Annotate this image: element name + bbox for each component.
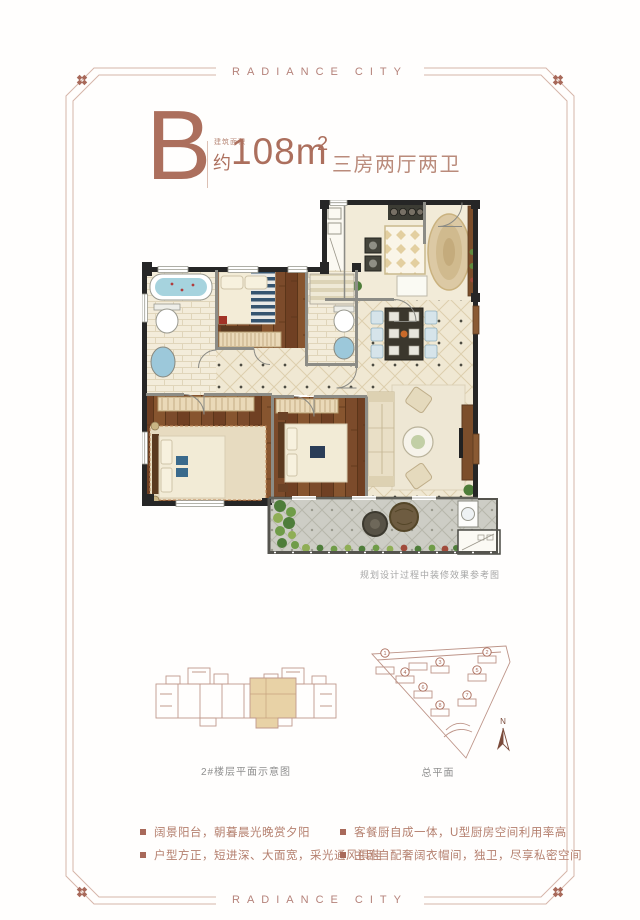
bullet-square-icon [340, 829, 346, 835]
room-configuration: 三房两厅两卫 [332, 148, 461, 177]
dining-area [371, 308, 437, 360]
svg-text:N: N [500, 717, 506, 726]
feature-item: 主卧自配奢阔衣帽间，独卫，尽享私密空间 [340, 847, 582, 863]
floor-plan [142, 200, 502, 558]
area-value: 108m [231, 131, 328, 173]
site-plan-diagram: 1 2 3 4 5 6 7 8 N [360, 640, 518, 765]
stone-bowl [390, 503, 418, 531]
site-plan-caption: 总平面 [400, 764, 476, 779]
feature-item: 客餐厨自成一体，U型厨房空间利用率高 [340, 824, 567, 840]
bedroom-2 [276, 399, 347, 492]
svg-text:7: 7 [465, 693, 468, 699]
svg-text:2: 2 [485, 650, 488, 656]
bullet-square-icon [140, 829, 146, 835]
north-arrow-icon: N [497, 717, 509, 750]
bullet-square-icon [340, 852, 346, 858]
svg-text:8: 8 [438, 703, 441, 709]
site-building-markers: 1 2 3 4 5 6 7 8 [381, 648, 491, 709]
bedroom-3 [219, 272, 281, 347]
brand-bottom: RADIANCE CITY [216, 894, 424, 906]
plan-disclaimer: 规划设计过程中装修效果参考图 [300, 568, 500, 581]
svg-text:5: 5 [475, 668, 478, 674]
bullet-square-icon [140, 852, 146, 858]
poster-page: RADIANCE CITY RADIANCE CITY B 建筑面积 约 108… [0, 0, 640, 920]
plant-icon [464, 485, 475, 496]
area-approx-label: 约 [213, 149, 231, 175]
highlighted-unit [250, 678, 296, 728]
feature-item: 阔景阳台，朝暮晨光晚赏夕阳 [140, 824, 310, 840]
svg-text:3: 3 [438, 660, 441, 666]
utility-closet [458, 530, 500, 554]
key-plan-diagram [146, 650, 346, 750]
brand-top: RADIANCE CITY [216, 66, 424, 78]
svg-text:1: 1 [383, 651, 386, 657]
key-plan-caption: 2#楼层平面示意图 [146, 763, 346, 778]
living-room [368, 385, 476, 496]
svg-text:4: 4 [403, 670, 406, 676]
unit-type-letter: B [146, 96, 211, 194]
sofa [368, 392, 394, 486]
area-exponent: 2 [317, 133, 328, 156]
wardrobe [219, 332, 281, 347]
svg-text:6: 6 [421, 685, 424, 691]
title-divider [207, 141, 208, 188]
